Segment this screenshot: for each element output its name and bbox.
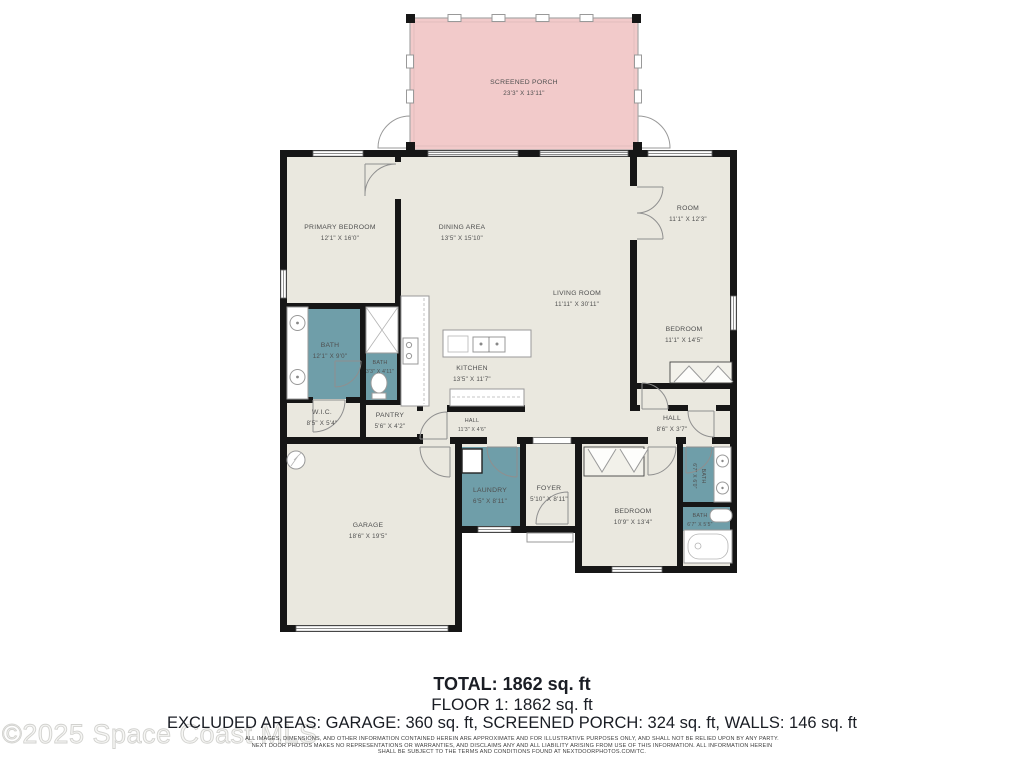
electrical-panel [287,451,305,469]
svg-text:8'6" X 3'7": 8'6" X 3'7" [657,426,688,433]
area-summary: TOTAL: 1862 sq. ft FLOOR 1: 1862 sq. ft … [0,674,1024,756]
svg-text:6'7" X 5'5": 6'7" X 5'5" [687,522,712,528]
slider-door [540,151,628,156]
svg-text:LIVING ROOM: LIVING ROOM [553,290,601,297]
porch-post [406,14,415,23]
porch-post [633,142,642,150]
svg-text:KITCHEN: KITCHEN [456,365,488,372]
porch-post [632,14,641,23]
svg-text:BEDROOM: BEDROOM [615,508,652,515]
shower [366,307,398,353]
ensuite-bath-floor [683,447,715,502]
svg-text:HALL: HALL [465,418,480,424]
svg-text:FOYER: FOYER [537,485,562,492]
total-area: TOTAL: 1862 sq. ft [0,674,1024,695]
svg-text:5'10" X 8'11": 5'10" X 8'11" [530,496,568,503]
excluded-areas: EXCLUDED AREAS: GARAGE: 360 sq. ft, SCRE… [0,714,1024,732]
svg-text:13'5" X 11'7": 13'5" X 11'7" [453,376,491,383]
svg-text:HALL: HALL [663,415,681,422]
svg-text:BATH: BATH [693,513,708,519]
kitchen-island [443,330,531,357]
toilet [371,373,387,399]
svg-text:PRIMARY BEDROOM: PRIMARY BEDROOM [304,224,376,231]
floor-plan-svg: SCREENED PORCH 23'3" X 13'11" PRIMARY BE… [0,0,1024,768]
svg-text:SCREENED PORCH: SCREENED PORCH [490,79,558,86]
svg-text:5'6" X 4'2": 5'6" X 4'2" [375,423,406,430]
svg-text:LAUNDRY: LAUNDRY [473,487,507,494]
porch-step-right [638,116,670,148]
svg-text:11'3" X 4'6": 11'3" X 4'6" [458,427,486,433]
svg-text:11'11" X 30'11": 11'11" X 30'11" [555,301,599,308]
svg-text:18'6" X 19'5": 18'6" X 19'5" [349,533,387,540]
svg-text:BATH: BATH [321,342,340,349]
svg-text:GARAGE: GARAGE [353,522,384,529]
svg-text:8'5" X 5'4": 8'5" X 5'4" [307,420,338,427]
toilet [710,509,732,522]
svg-text:DINING AREA: DINING AREA [439,224,486,231]
slider-door [428,151,518,156]
svg-text:BATH: BATH [373,360,388,366]
kitchen-counter [401,296,429,406]
porch-step-left [378,116,410,148]
svg-text:BATH: BATH [700,469,706,484]
laundry-closet [462,449,482,473]
svg-text:ROOM: ROOM [677,205,699,212]
range [403,338,418,364]
disclaimer: ALL IMAGES, DIMENSIONS, AND OTHER INFORM… [0,736,1024,756]
floor-plan-page: SCREENED PORCH 23'3" X 13'11" PRIMARY BE… [0,0,1024,768]
svg-text:12'1" X 9'0": 12'1" X 9'0" [313,353,348,360]
svg-text:12'1" X 16'0": 12'1" X 16'0" [321,235,359,242]
svg-text:6'7" X 6'0": 6'7" X 6'0" [691,463,697,488]
svg-text:BEDROOM: BEDROOM [666,326,703,333]
bedroom-bottom-closet [584,447,648,476]
svg-text:3'3" X 4'11": 3'3" X 4'11" [366,369,394,375]
svg-text:13'5" X 15'10": 13'5" X 15'10" [441,235,483,242]
bathtub [684,530,732,563]
svg-text:10'9" X 13'4": 10'9" X 13'4" [614,519,652,526]
primary-bath-vanity [287,307,308,399]
floor1-area: FLOOR 1: 1862 sq. ft [0,695,1024,714]
svg-text:6'5" X 8'11": 6'5" X 8'11" [473,498,507,505]
svg-text:11'1" X 12'3": 11'1" X 12'3" [669,216,707,223]
entry-stoop [527,533,573,542]
disclaimer-line: SHALL BE SUBJECT TO THE TERMS AND CONDIT… [0,749,1024,756]
breakfast-bar [450,389,524,406]
bedroom-right-closet [670,362,733,383]
svg-text:W.I.C.: W.I.C. [312,409,332,416]
double-vanity [714,447,731,502]
svg-text:11'1" X 14'5": 11'1" X 14'5" [665,337,703,344]
svg-text:23'3" X 13'11": 23'3" X 13'11" [503,90,544,97]
svg-text:PANTRY: PANTRY [376,412,405,419]
porch-post [406,142,415,150]
cased-opening [533,438,571,444]
